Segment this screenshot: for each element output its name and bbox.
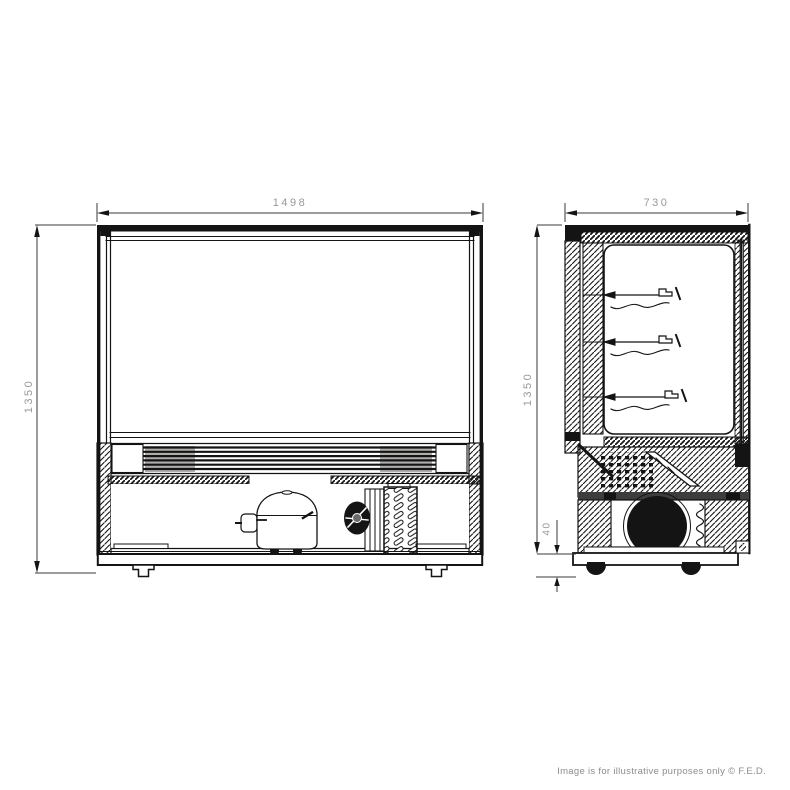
front-hatched-band: [108, 476, 482, 484]
side-depth-dimension-label: 730: [565, 197, 748, 209]
front-vent-grille: [111, 444, 469, 474]
side-view: [565, 225, 750, 575]
side-height-dimension-label: 1350: [522, 361, 534, 417]
front-machine-compartment: [111, 484, 469, 557]
side-evaporator-zone: [578, 437, 749, 500]
watermark-text: Image is for illustrative purposes only …: [0, 766, 766, 777]
front-height-dimension-label: 1350: [23, 368, 35, 424]
front-right-foot: [426, 565, 447, 577]
caster-left: [586, 562, 606, 575]
technical-drawing-page: 1498 1350 730 1350 40 Image is for illus…: [0, 0, 790, 790]
display-fridge-drawing: [0, 0, 790, 790]
base-height-dimension-label: 40: [542, 509, 553, 549]
caster-right: [681, 562, 701, 575]
front-left-insulation: [97, 443, 111, 555]
front-right-insulation: [469, 443, 483, 555]
front-left-foot: [133, 565, 154, 577]
vent-perforation: [601, 452, 653, 491]
front-glass-panel: [107, 231, 474, 443]
front-base: [98, 552, 482, 577]
dimension-front-height: [34, 225, 96, 573]
side-top-frame: [565, 225, 750, 243]
front-view: [97, 225, 483, 577]
side-back-wall: [565, 241, 603, 453]
front-width-dimension-label: 1498: [97, 197, 483, 209]
